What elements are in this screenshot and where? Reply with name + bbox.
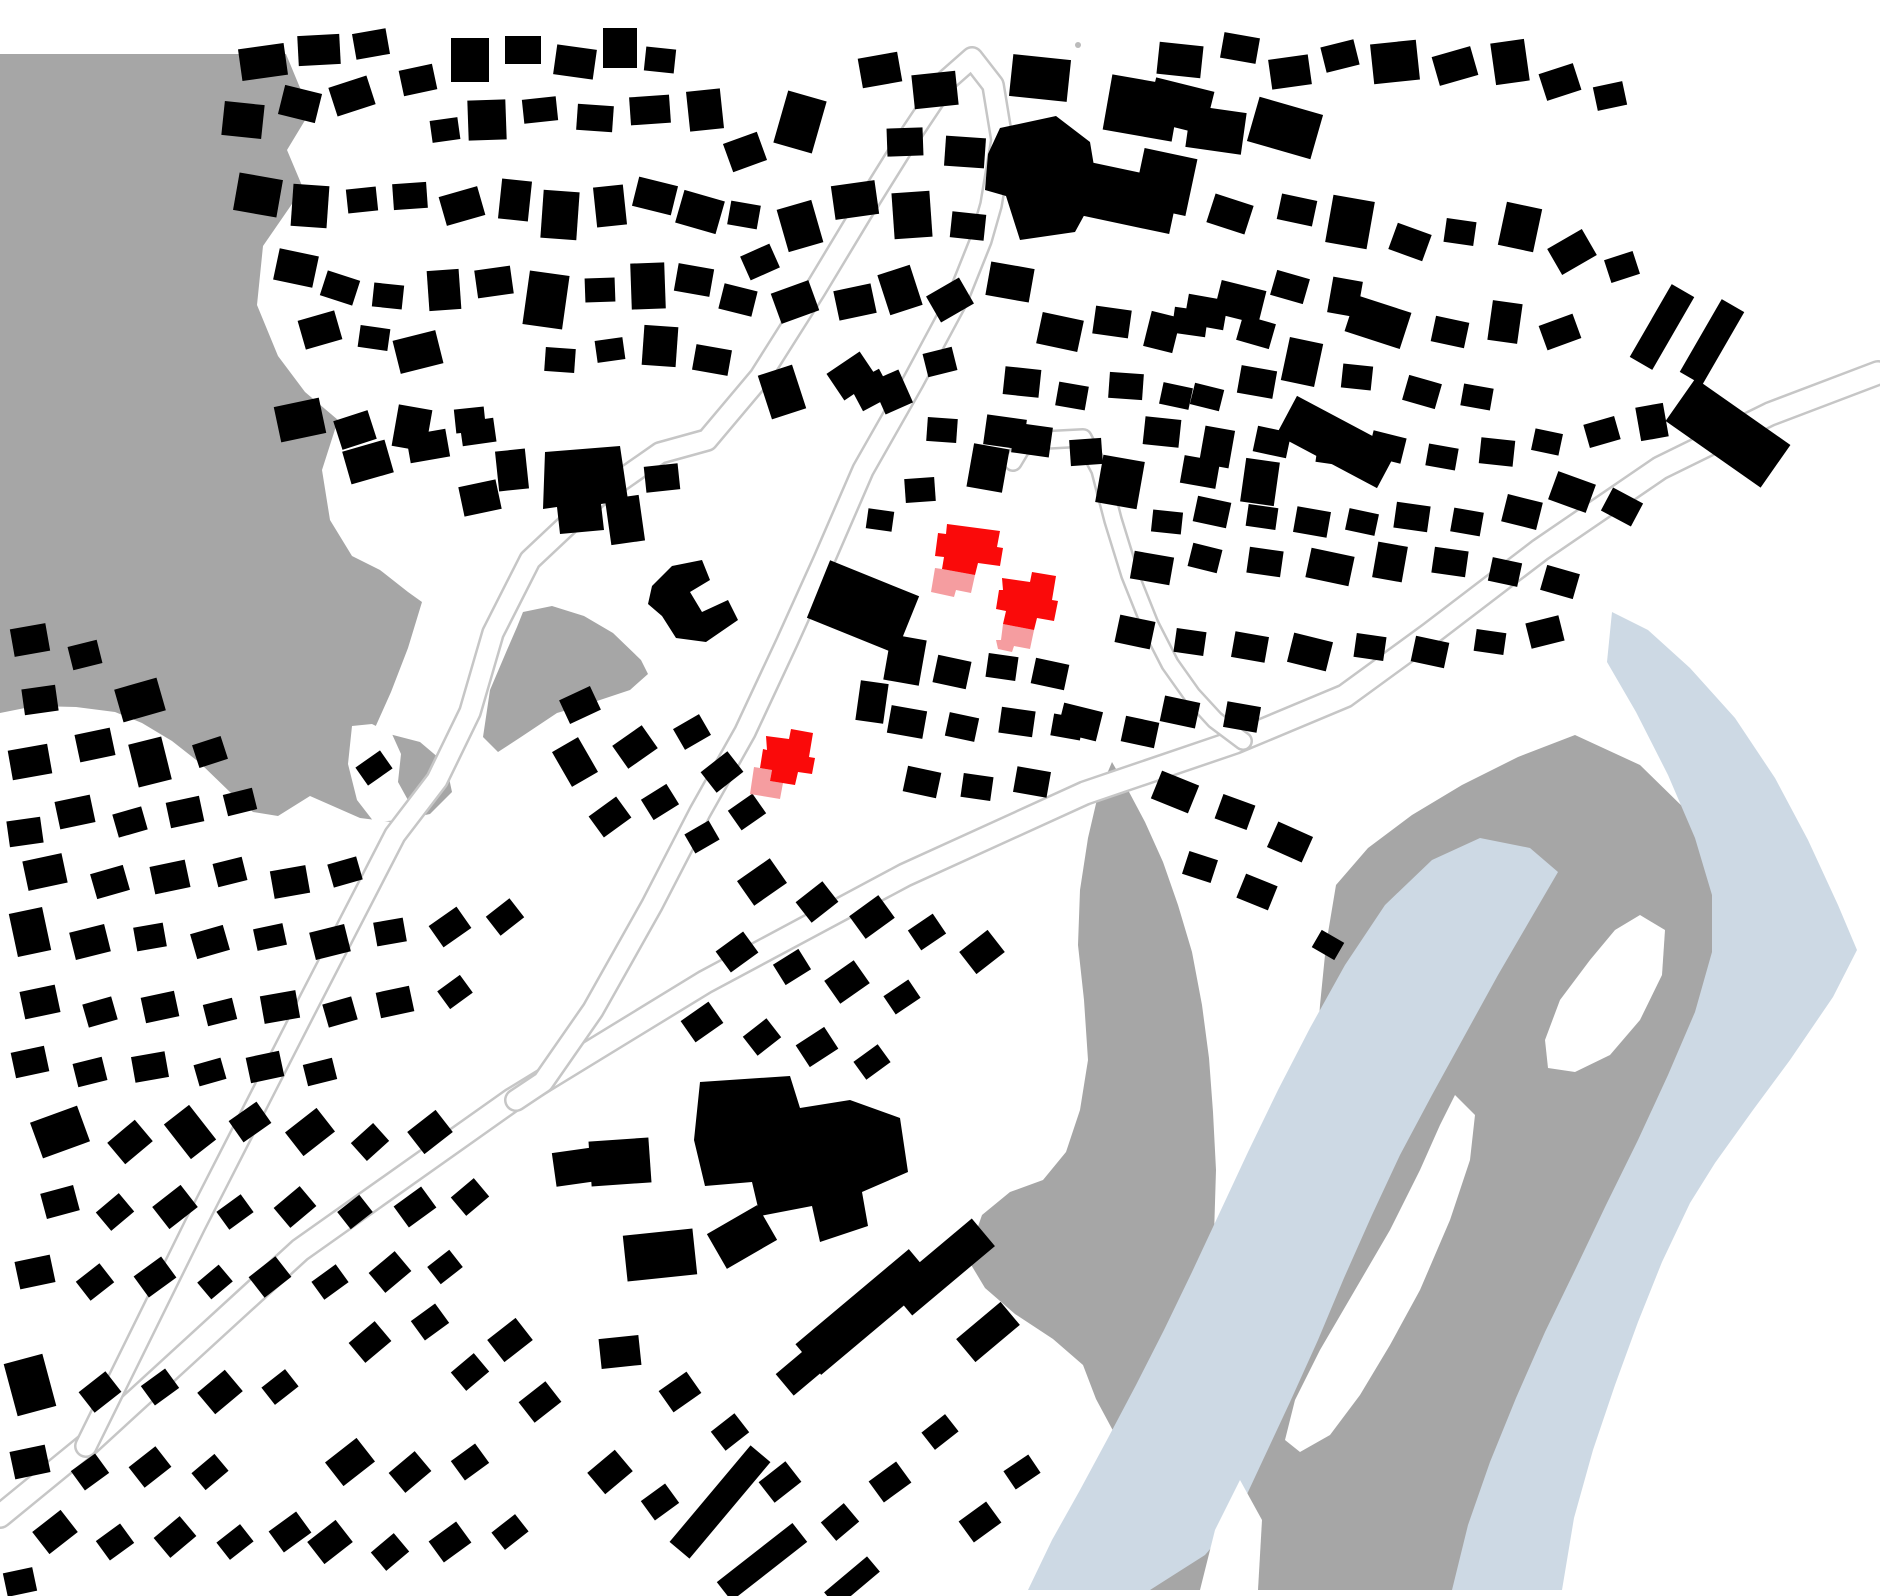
artifacts-layer [1075,42,1081,48]
building-footprint [630,262,666,309]
building-footprint [133,923,167,952]
building-footprint [855,680,888,724]
building-footprint [966,443,1009,493]
building-footprint [1003,366,1042,398]
building-footprint [505,36,541,64]
building-footprint [950,211,987,240]
building-footprint [1635,403,1668,441]
building-footprint [467,99,506,140]
building-footprint [233,172,283,217]
building-footprint [1171,307,1208,337]
building-footprint [459,418,496,446]
building-footprint [727,201,761,230]
building-footprint [911,71,958,109]
building-footprint [1268,54,1312,89]
building-footprint [1431,547,1468,577]
building-footprint [1490,39,1530,85]
building-footprint [1479,437,1516,466]
building-footprint [553,44,597,79]
building-footprint [1173,628,1206,656]
building-footprint [1151,509,1183,534]
building-footprint [474,266,514,299]
building-footprint [1246,504,1279,530]
tiny-dot-top [1075,42,1081,48]
building-footprint [1393,502,1430,532]
building-footprint [1246,547,1283,577]
building-footprint [498,179,532,222]
building-footprint [358,325,391,351]
building-footprint [1450,508,1484,537]
building-footprint [1487,300,1522,344]
building-footprint [1108,372,1144,400]
building-footprint [1353,633,1386,661]
building-footprint [372,282,404,309]
building-footprint [6,817,43,847]
building-footprint [522,96,558,123]
building-footprint [221,101,264,139]
building-footprint [1069,438,1103,466]
building-footprint [985,653,1018,681]
building-footprint [866,508,895,531]
building-footprint [998,707,1035,737]
building-footprint [392,182,428,210]
building-footprint [686,88,724,131]
building-footprint [589,1137,652,1186]
building-footprint [629,95,671,126]
building-footprint [595,337,626,363]
building-footprint [430,117,461,143]
building-footprint [291,184,330,228]
building-footprint [427,269,462,311]
building-footprint [585,277,616,302]
building-footprint [1009,54,1071,102]
building-footprint [642,325,679,367]
building-footprint [599,1335,642,1369]
building-footprint [1370,40,1420,85]
building-footprint [1143,416,1182,448]
building-footprint [1443,218,1476,246]
map-canvas [0,0,1880,1596]
building-footprint [544,347,576,373]
figure-ground-site-plan [0,0,1880,1596]
building-footprint [1325,195,1375,250]
building-footprint [1095,455,1145,510]
building-footprint [831,180,879,220]
building-footprint [891,191,932,240]
building-footprint [297,34,341,66]
building-footprint [1156,42,1203,78]
building-footprint [593,185,627,228]
building-footprint [960,773,993,801]
building-footprint [238,43,288,81]
building-footprint [1055,382,1089,411]
building-footprint [540,190,579,240]
building-footprint [926,417,958,443]
building-footprint [983,414,1027,449]
building-footprint [346,186,378,213]
building-footprint [522,270,569,329]
building-footprint [603,28,637,68]
building-footprint [451,38,489,82]
building-footprint [944,136,986,169]
building-footprint [904,477,936,503]
building-footprint [576,104,614,132]
building-footprint [644,46,676,73]
building-footprint [21,685,58,715]
building-footprint [644,463,681,492]
building-footprint [373,918,407,947]
building-footprint [495,449,529,492]
building-footprint [1372,542,1408,583]
building-footprint [1341,363,1373,390]
building-footprint [887,127,924,156]
building-footprint [1240,458,1280,506]
building-footprint [1092,306,1132,339]
building-footprint [1474,629,1507,655]
building-footprint [623,1228,697,1281]
